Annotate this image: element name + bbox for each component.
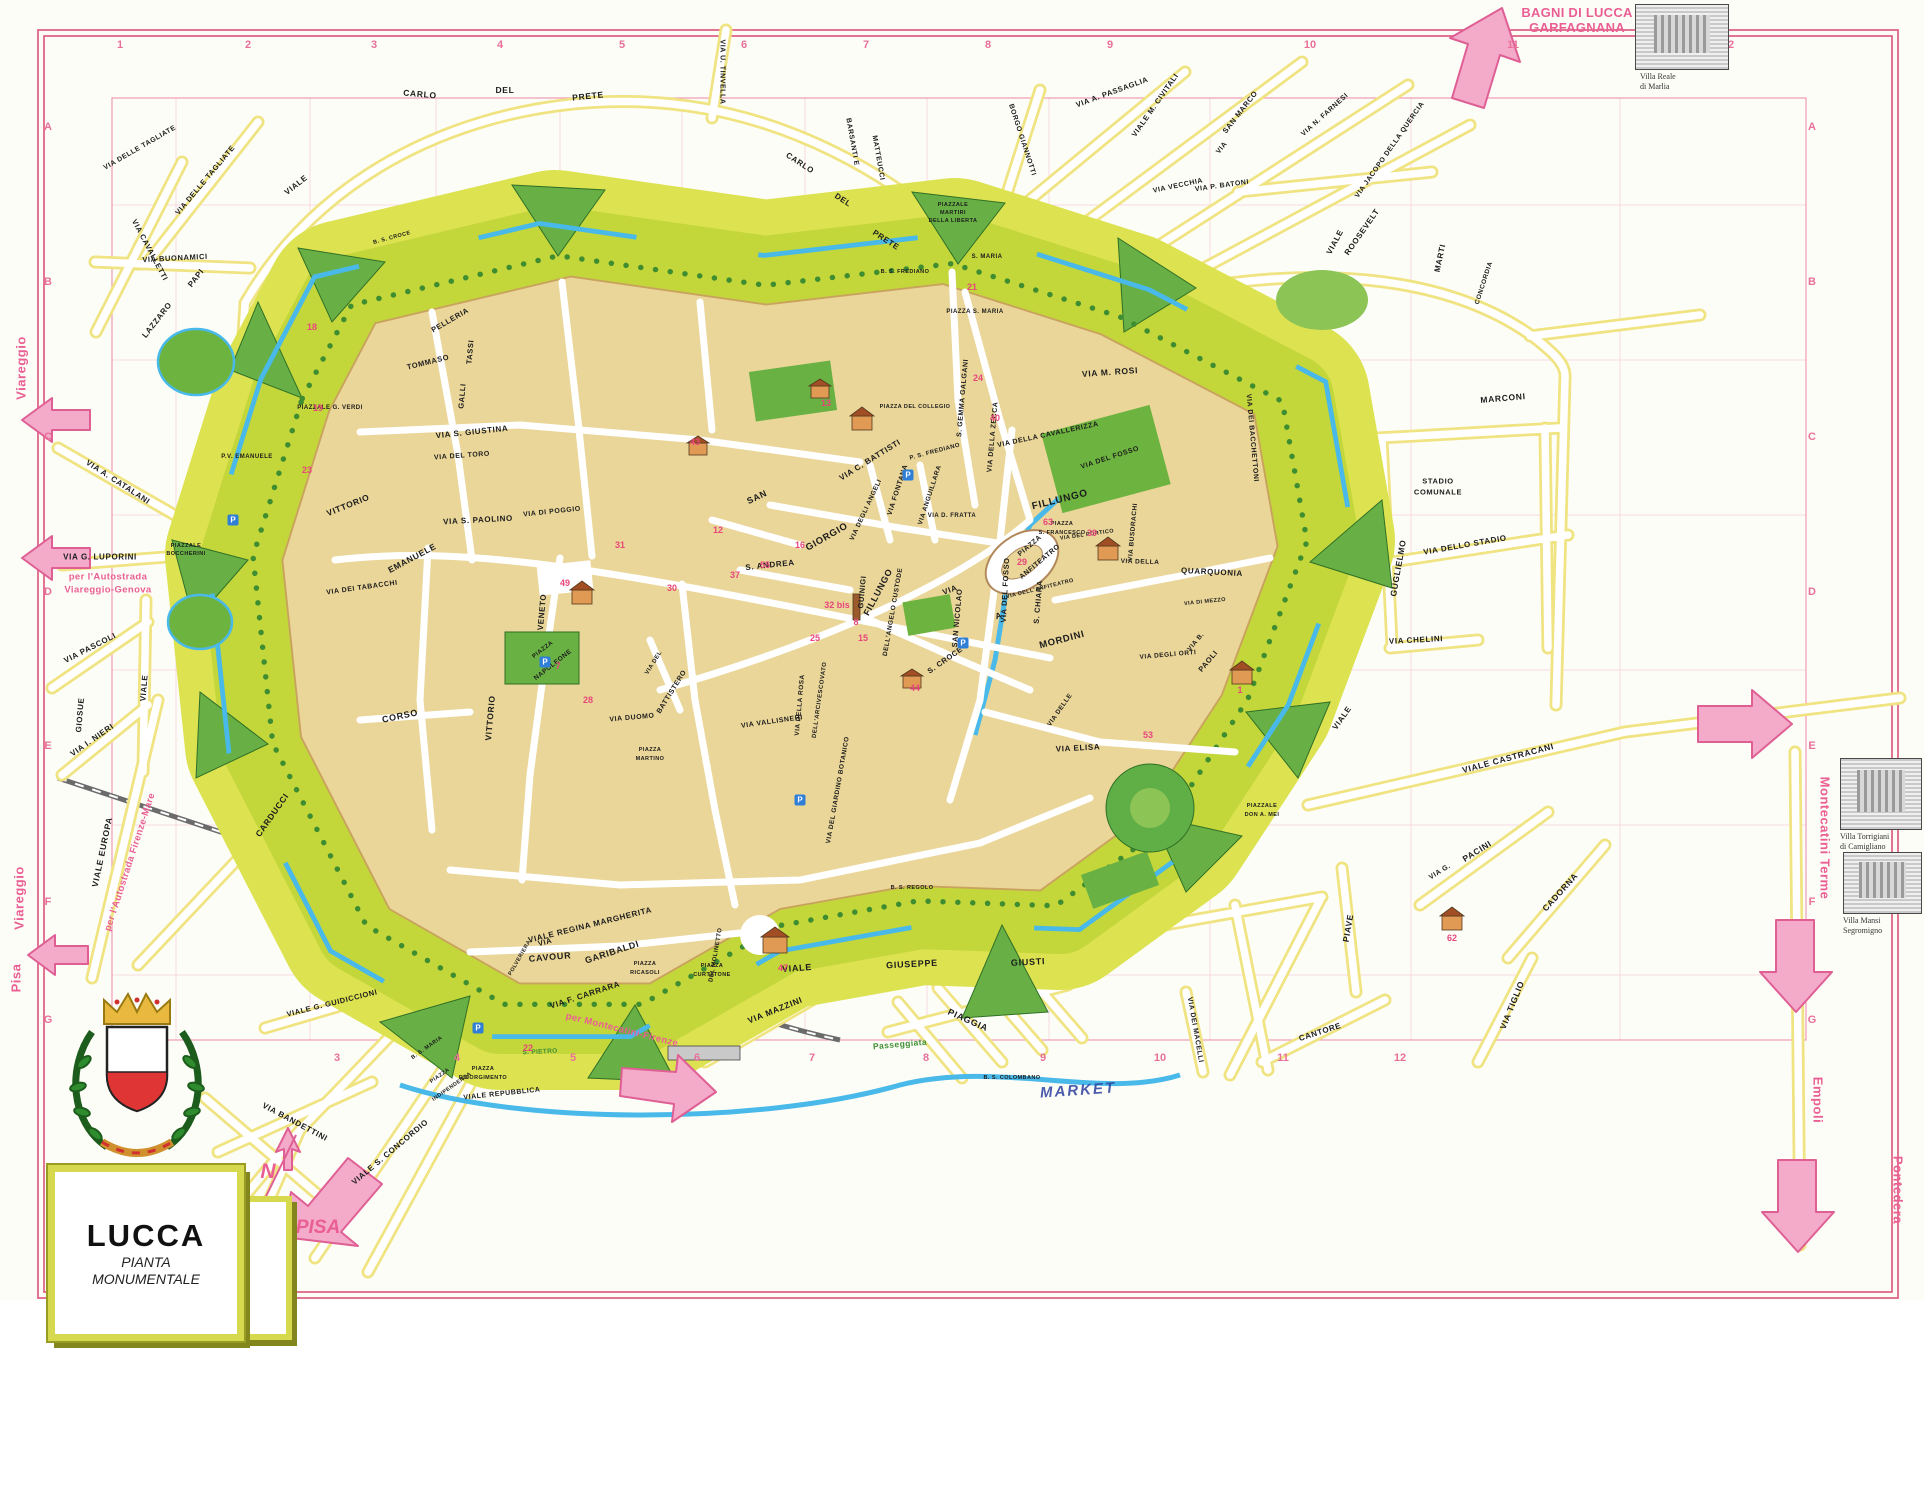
grid-label: 9 [1040,1052,1046,1064]
map-gridlines [112,98,1806,1040]
street-label: GIUSTI [1011,956,1046,968]
street-label: PAOLI [1196,648,1219,673]
street-label: CAVOUR [528,950,571,964]
street-label: VIALE [138,674,149,701]
street-label: PIAZZA [1051,521,1074,527]
street-label: VIA JACOPO DELLA QUERCIA [1354,101,1426,200]
grid-label: A [44,121,52,133]
edge-label: per l'Autostrada [69,572,148,583]
grid-label: B [44,276,52,288]
street-label: VIA DELL'ANFITEATRO [1006,578,1075,601]
poi-marker: 22 [523,1043,533,1053]
outer-roads-halo [52,30,1900,1272]
street-label: ROOSEVELT [1343,207,1382,257]
edge-label: Montecatini Terme [1818,777,1833,900]
poi-marker: 63 [1043,517,1053,527]
street-label: GUGLIELMO [1388,539,1408,597]
edge-label: Pisa [9,964,24,993]
street-label: Passeggiata [873,1037,928,1052]
street-label: VIA DELLA CAVALLERIZZA [997,421,1100,449]
photo-villa-reale [1635,4,1729,70]
grid-label: 9 [1107,39,1113,51]
moat [208,223,1353,1036]
street-label: QUARQUONIA [1181,566,1243,578]
street-label: VIA M. ROSI [1082,365,1139,379]
street-label: DEL MOLINETTO [708,927,723,982]
street-label: VIA DELLO STADIO [1423,533,1508,557]
street-label: VIA DEL TORO [434,451,490,462]
street-label: VIA DEI BACCHETTONI [1245,394,1260,483]
street-label: RICASOLI [630,970,660,976]
street-label: VIA DEL [644,650,663,676]
banner-line2: GARFAGNANA [1518,21,1636,36]
street-label: VIA FONTANA [886,464,909,517]
street-label: VIA G. [1428,863,1452,882]
poi-marker: 55 [760,560,770,570]
grid-label: D [44,586,52,598]
edge-label: Pontedera [1891,1156,1906,1224]
street-label: VIA DEL GIARDINO BOTANICO [825,736,851,844]
street-label: CANTORE [1298,1021,1343,1043]
street-label: PIAZZA S. MARIA [946,309,1003,315]
park-pond-w [168,595,232,649]
street-label: CURTATONE [693,972,731,978]
grid-label: F [1809,896,1816,908]
street-label: P.V. EMANUELE [221,454,273,460]
street-label: PIAZZA [472,1066,495,1072]
street-label: P. S. FREDIANO [909,442,961,461]
street-label: PIAZZA [429,1067,451,1085]
street-label: B. S. COLOMBANO [983,1075,1040,1081]
grid-label: 6 [741,39,747,51]
poi-marker: 8 [853,617,858,627]
street-label: PELLERIA [430,306,471,335]
poi-marker: 24 [973,373,983,383]
lucca-coat-of-arms [62,972,212,1172]
street-label: VIA DEGLI ANGELI [849,478,884,541]
street-label: PIAGGIA [946,1007,989,1034]
street-label: PIAZZALE [171,543,201,549]
street-label: VIA ELISA [1055,742,1100,753]
direction-arrows [22,8,1834,1252]
street-label: VIA TIGLIO [1498,979,1527,1030]
street-label: VIALE [283,173,310,197]
grid-label: E [1808,740,1815,752]
banner-bagni-di-lucca: BAGNI DI LUCCA GARFAGNANA [1518,6,1636,36]
poi-marker: 31 [615,540,625,550]
street-label: VIALE [1331,704,1354,731]
street-label: CONCORDIA [1474,261,1494,306]
street-label: VIA I. NIERI [69,722,116,759]
street-label: PAPI [186,267,206,289]
poi-marker: 18 [307,322,317,332]
street-label: S. PIETRO [522,1048,557,1057]
street-label: VIA BANDETTINI [261,1101,329,1143]
street-label: SAN NICOLAO [950,588,964,648]
map-subtitle-1: PIANTA [121,1254,171,1272]
street-label: S. FRANCESCO [1039,530,1086,536]
street-label: VIA DEL PORTICO [1060,528,1115,542]
poi-marker: 28 [583,695,593,705]
grid-label: 3 [334,1052,340,1064]
street-label: BORGO GIANNOTTI [1007,103,1037,177]
street-label: PIAZZA [531,640,554,660]
street-label: FILLUNGO [861,567,894,617]
street-label: INDIPENDENZA [431,1071,473,1103]
street-label: VIALE S. CONCORDIO [350,1117,430,1186]
street-label: B. S. REGOLO [891,885,934,891]
poi-marker: 47 [778,963,788,973]
edge-label: PISA [296,1217,340,1239]
street-label: S. CHIARA [1032,580,1045,624]
street-label: VIALE EUROPA [90,816,115,888]
city-walls [172,185,1392,1082]
grid-label: 11 [1507,39,1519,51]
edge-label: N [260,1160,275,1184]
street-label: DELL'ANGELO CUSTODE [882,567,904,657]
street-label: VIA DEI MACELLI [1186,997,1204,1064]
street-label: VIA BUSDRACHI [1127,503,1139,562]
street-label: GIOSUE [74,697,86,733]
street-label: GIUSEPPE [886,958,938,971]
edge-label: Viareggio [14,336,29,400]
wall-bastions [172,185,1392,1082]
street-label: DEL [833,191,853,208]
street-label: CORSO [381,707,419,724]
street-label: STADIO [1422,477,1453,486]
parking-icon: P [540,657,551,668]
street-label: PIAZZA [634,961,657,967]
street-label: TASSI [464,339,475,364]
street-label: DON A. MEI [1245,812,1280,818]
grid-label: C [1808,431,1816,443]
street-label: CARLO [784,151,815,176]
park-ne [1276,270,1368,330]
street-label: S. MARIA [972,254,1003,260]
street-label: VIA PASCOLI [62,631,117,665]
grid-label: 10 [1154,1052,1166,1064]
edge-label: per Montecatini-Firenze [565,1011,680,1050]
street-label: MARTIRI [940,210,966,216]
street-label: VIA DELLA ROSA [794,674,806,736]
grid-label: 7 [863,39,869,51]
street-label: VENETO [536,593,548,630]
street-label: DELLA LIBERTA [929,218,978,224]
street-label: VIA CAVALLETTI [130,218,170,283]
street-label: SAN MARCO [1221,89,1260,135]
street-label: VIA DELLE TAGLIATE [103,124,178,171]
street-label: VIA BUONAMICI [142,252,208,264]
street-label: PRETE [871,228,901,252]
street-label: VIALE [782,962,813,974]
parking-icon: P [958,638,969,649]
street-label: VIA B. [1186,631,1206,652]
street-label: VIA DEI TABACCHI [326,580,398,597]
street-label: VIA DELLE [1046,692,1074,727]
street-label: VIA A. CATALANI [84,458,151,506]
street-label: CARLO [403,88,437,101]
street-label: PIAZZALE [1247,803,1277,809]
street-label: S. CROCE [926,645,965,676]
street-label: GARIBALDI [584,939,641,966]
parking-icon: P [795,795,806,806]
edge-label: Viareggio-Genova [64,585,151,596]
caption-villa-mansi: Villa MansiSegromigno [1843,916,1882,935]
street-label: VIA S. GIUSTINA [435,424,508,441]
street-label: VIA [1215,141,1229,156]
street-label: LAZZARO [140,300,173,339]
street-label: PRETE [572,89,605,102]
street-label: VIA DEGLI ORTI [1139,649,1196,661]
poi-marker: 25 [810,633,820,643]
street-label: MATTEUCCI [871,135,886,181]
street-label: VIALE CASTRACANI [1461,741,1555,775]
grid-label: 7 [809,1052,815,1064]
street-label: VIALE M. CIVITALI [1130,72,1181,139]
parking-icon: P [903,470,914,481]
grid-label: G [44,1014,53,1026]
street-label: VIA DUOMO [609,713,655,724]
street-label: VIA F. CARRARA [549,979,621,1010]
street-label: VIA VALLISNERI [741,714,804,730]
street-label: TOMMASO [406,352,450,371]
poi-marker: 7 [555,661,560,671]
street-label: VIA U. TINVELLA [719,40,726,105]
street-label: B. S. MARIA [410,1035,443,1061]
grid-label: F [45,896,52,908]
street-label: VITTORIO [483,695,497,741]
street-label: PIAZZA [1017,534,1043,558]
street-label: BATTISTERO [656,669,688,715]
street-label: VIALE [1325,228,1346,256]
street-label: DELL'ARCIVESCOVATO [812,661,829,738]
grid-label: 5 [570,1052,576,1064]
grid-label: 8 [985,39,991,51]
grid-label: D [1808,586,1816,598]
wall-tree-rows [253,256,1307,1005]
street-label: MARCONI [1480,391,1526,405]
banner-line1: BAGNI DI LUCCA [1518,6,1636,21]
street-label: CARDUCCI [253,791,290,838]
street-label: VIA DELLE TAGLIATE [173,143,237,216]
grid-label: 8 [923,1052,929,1064]
compass-arrow [276,1128,300,1170]
street-label: VIALE G. GUIDICCIONI [286,987,379,1018]
street-label: GIORGIO [804,520,850,553]
poi-marker: 39 [1087,528,1097,538]
poi-marker: 53 [1143,730,1153,740]
street-label: S. GEMMA GALGANI [956,359,970,438]
street-label: VIA DEL FOSSO [999,557,1011,623]
street-label: VIA P. BATONI [1195,179,1250,194]
parking-icon: P [228,515,239,526]
parking-icon: P [473,1023,484,1034]
street-label: PACINI [1461,838,1494,864]
street-label: PIAZZA [701,963,724,969]
caption-villa-reale: Villa Realedi Marlia [1640,72,1676,91]
poi-marker: 62 [1447,933,1457,943]
grid-label: 10 [1304,39,1316,51]
poi-marker: 15 [858,633,868,643]
edge-label: Viareggio [12,866,27,930]
canals [400,470,1180,1115]
landmark-buildings [570,379,1464,1060]
street-label: VIA D. FRATTA [928,513,976,519]
street-label: B. S. FREDIANO [881,269,930,275]
street-label: MARTI [1433,243,1448,273]
poi-marker: 32 bis [824,600,850,610]
street-label: CADORNA [1540,871,1580,914]
street-label: VIA C. BATTISTI [838,438,903,483]
street-label: MARTINO [636,756,665,762]
parks-piazzas [505,361,1194,955]
street-label: VIA A. PASSAGLIA [1075,75,1150,110]
poi-marker: 44 [910,683,920,693]
map-frame [38,30,1898,1298]
street-label: BARSANTI E [844,118,859,167]
street-label: EMANUELE [386,541,438,575]
street-label: PIAZZALE [938,202,968,208]
street-label: PIAVE [1341,913,1356,943]
grid-label: 2 [245,39,251,51]
street-label: VIA DI MEZZO [1184,597,1226,607]
poi-marker: 29 [1017,557,1027,567]
grid-label: A [1808,121,1816,133]
poi-marker: 40 [990,413,1000,423]
grid-label: 11 [1277,1052,1289,1064]
street-label: COMUNALE [1414,488,1462,497]
street-label: VIA ANGUILLARA [917,464,943,526]
street-label: POLVERIERA [507,939,532,976]
map-title: LUCCA [87,1218,206,1254]
street-label: ANFITEATRO [1019,543,1062,581]
street-label: VIA G. LUPORINI [63,553,137,562]
street-label: PIAZZALE G. VERDI [297,405,363,411]
street-label: S. ANDREA [745,558,795,572]
street-label: RISORGIMENTO [459,1075,507,1081]
street-label: GALLI [456,383,467,409]
street-label: VIA CHELINI [1389,634,1444,646]
grid-label: 3 [371,39,377,51]
photo-villa-torrigiani [1840,758,1922,830]
poi-marker: 21 [967,282,977,292]
grid-label: 5 [619,39,625,51]
street-label: VIA DELLA [1121,558,1160,566]
grid-label: C [44,431,52,443]
street-label: VIA DELLA ZECCA [986,401,999,472]
park-pond-nw [158,329,234,395]
edge-label: per l'Autostrada Firenze-Mare [102,791,157,932]
lucca-monumental-map: 1234567891011123456789101112ABCDEFGABCDE… [0,0,1924,1510]
street-label: VIA S. PAOLINO [443,514,513,527]
street-label: VIA [537,936,553,948]
street-label: VIA MAZZINI [746,994,804,1025]
city-streets [335,272,1270,952]
poi-marker: 30 [667,583,677,593]
street-label: VIA N. FARNESI [1300,92,1350,138]
map-subtitle-2: MONUMENTALE [92,1271,200,1289]
street-label: B. S. CROCE [373,230,412,246]
street-label: VIA VECCHIA [1152,177,1203,194]
street-label: SAN [745,488,768,506]
poi-marker: 43 [690,437,700,447]
street-label: MORDINI [1038,629,1086,652]
poi-marker: 12 [713,525,723,535]
street-label: VIALE REGINA MARGHERITA [527,905,653,944]
grid-label: 4 [454,1052,460,1064]
street-label: A. [994,609,1006,622]
grid-label: B [1808,276,1816,288]
grid-label: E [44,740,51,752]
poi-marker: 13 [821,398,831,408]
street-label: NAPOLEONE [533,648,573,682]
street-label: VIA [941,583,958,597]
street-label: PIAZZA [639,747,662,753]
outer-roads [52,30,1900,1272]
photo-villa-mansi [1843,852,1922,914]
poi-marker: 49 [560,578,570,588]
title-box-back-panel [236,1196,292,1340]
street-label: PIAZZA DEL COLLEGIO [880,404,951,410]
poi-marker: 16 [795,540,805,550]
street-label: VITTORIO [325,492,371,518]
title-box: LUCCA PIANTA MONUMENTALE [48,1165,244,1341]
street-label: VIALE REPUBBLICA [463,1086,541,1101]
poi-marker: 23 [302,465,312,475]
grid-label: 1 [117,39,123,51]
street-label: GUINIGI [856,575,868,609]
caption-villa-torrigiani: Villa Torrigianidi Camigliano [1840,832,1889,851]
poi-marker: 37 [730,570,740,580]
grid-label: 12 [1394,1052,1406,1064]
street-label: FILLUNGO [1031,488,1089,513]
street-label: BOCCHERINI [166,551,205,557]
grid-label: 6 [694,1052,700,1064]
grid-label: 4 [497,39,503,51]
handwritten-annotation: MARKET [1039,1079,1116,1101]
edge-label: Empoli [1811,1077,1826,1123]
grid-label: G [1808,1014,1817,1026]
street-label: VIA DI POGGIO [523,505,581,518]
poi-marker: 1 [1237,685,1242,695]
street-label: DEL [495,85,514,95]
poi-marker: 19 [313,403,323,413]
street-label: VIA DEL FOSSO [1080,445,1140,470]
